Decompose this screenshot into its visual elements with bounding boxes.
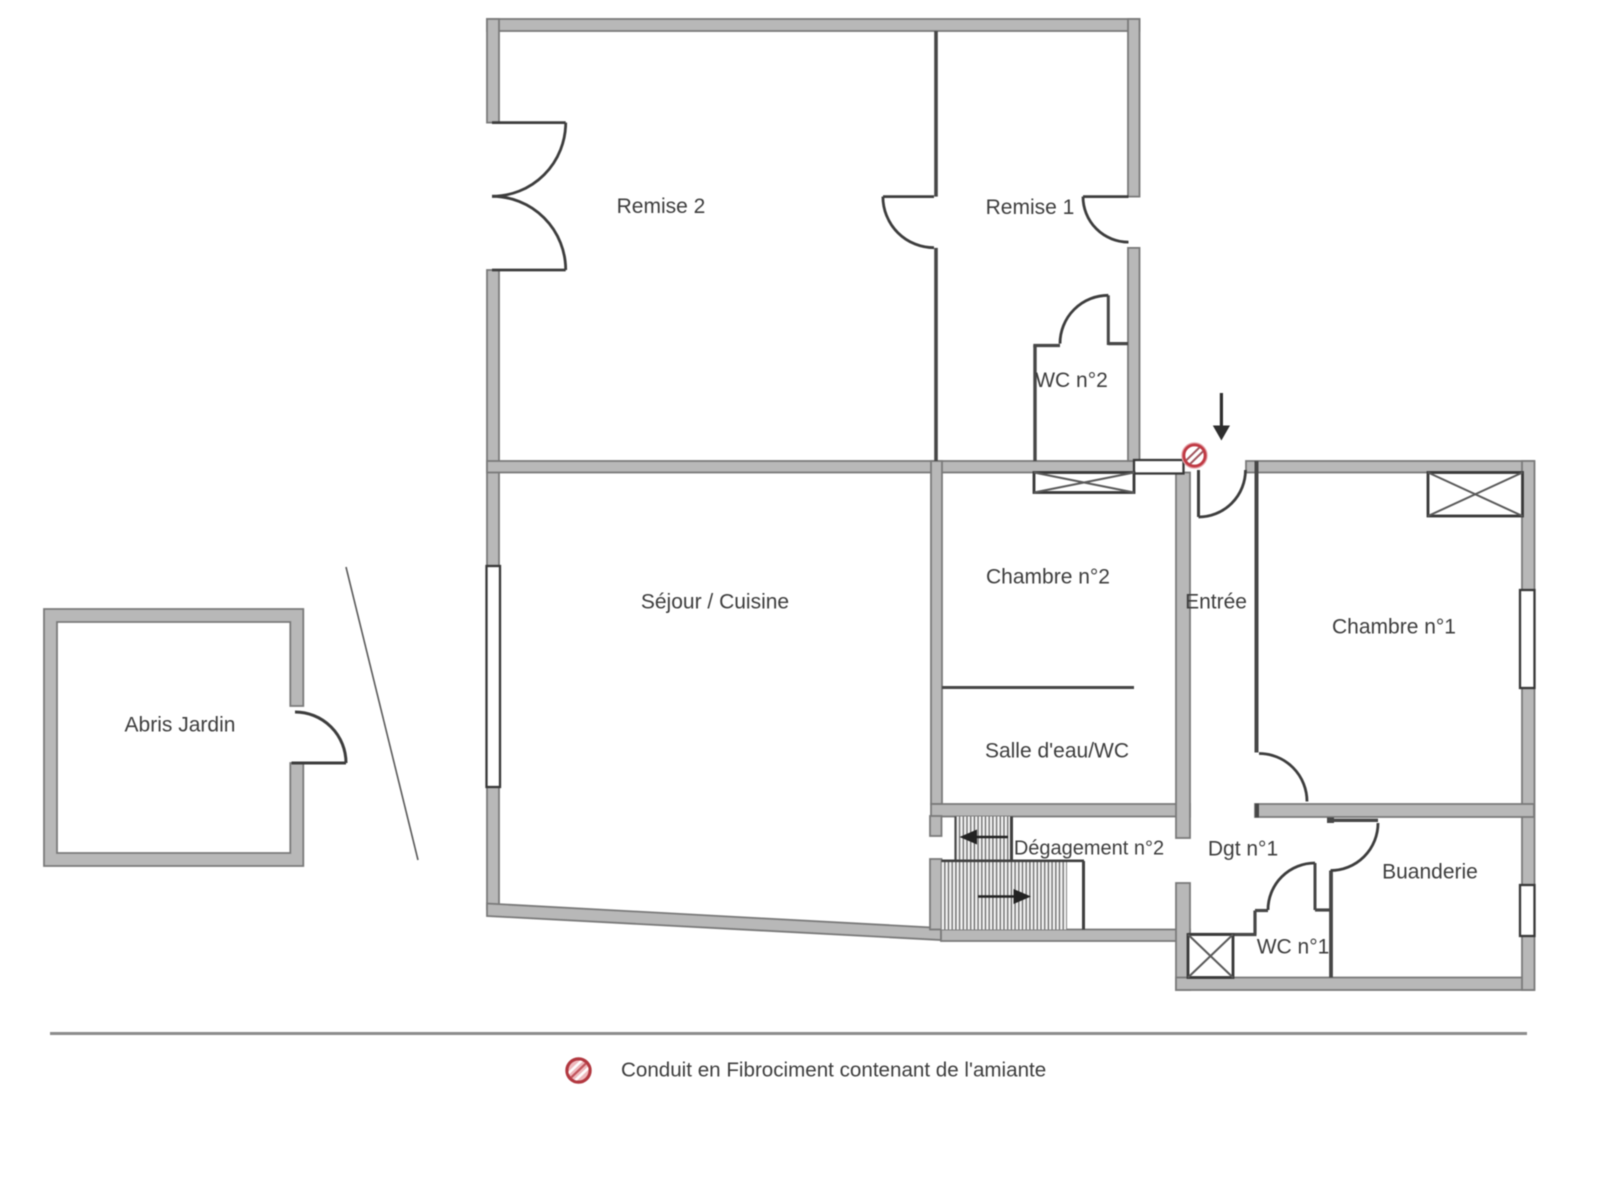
svg-text:Remise 1: Remise 1 [986, 196, 1075, 219]
svg-text:WC n°2: WC n°2 [1035, 369, 1108, 392]
svg-text:Chambre n°1: Chambre n°1 [1332, 616, 1456, 639]
svg-text:Séjour / Cuisine: Séjour / Cuisine [641, 591, 789, 614]
svg-text:Conduit en Fibrociment contena: Conduit en Fibrociment contenant de l'am… [621, 1059, 1046, 1082]
svg-text:Dgt n°1: Dgt n°1 [1208, 838, 1278, 861]
svg-text:Entrée: Entrée [1185, 591, 1247, 614]
svg-text:WC n°1: WC n°1 [1257, 936, 1330, 959]
svg-text:Salle d'eau/WC: Salle d'eau/WC [985, 740, 1129, 763]
svg-text:Abris Jardin: Abris Jardin [125, 714, 236, 737]
svg-text:Dégagement n°2: Dégagement n°2 [1014, 838, 1164, 860]
svg-text:Chambre n°2: Chambre n°2 [986, 566, 1110, 589]
svg-text:Buanderie: Buanderie [1382, 861, 1478, 884]
svg-text:Remise 2: Remise 2 [617, 195, 706, 218]
